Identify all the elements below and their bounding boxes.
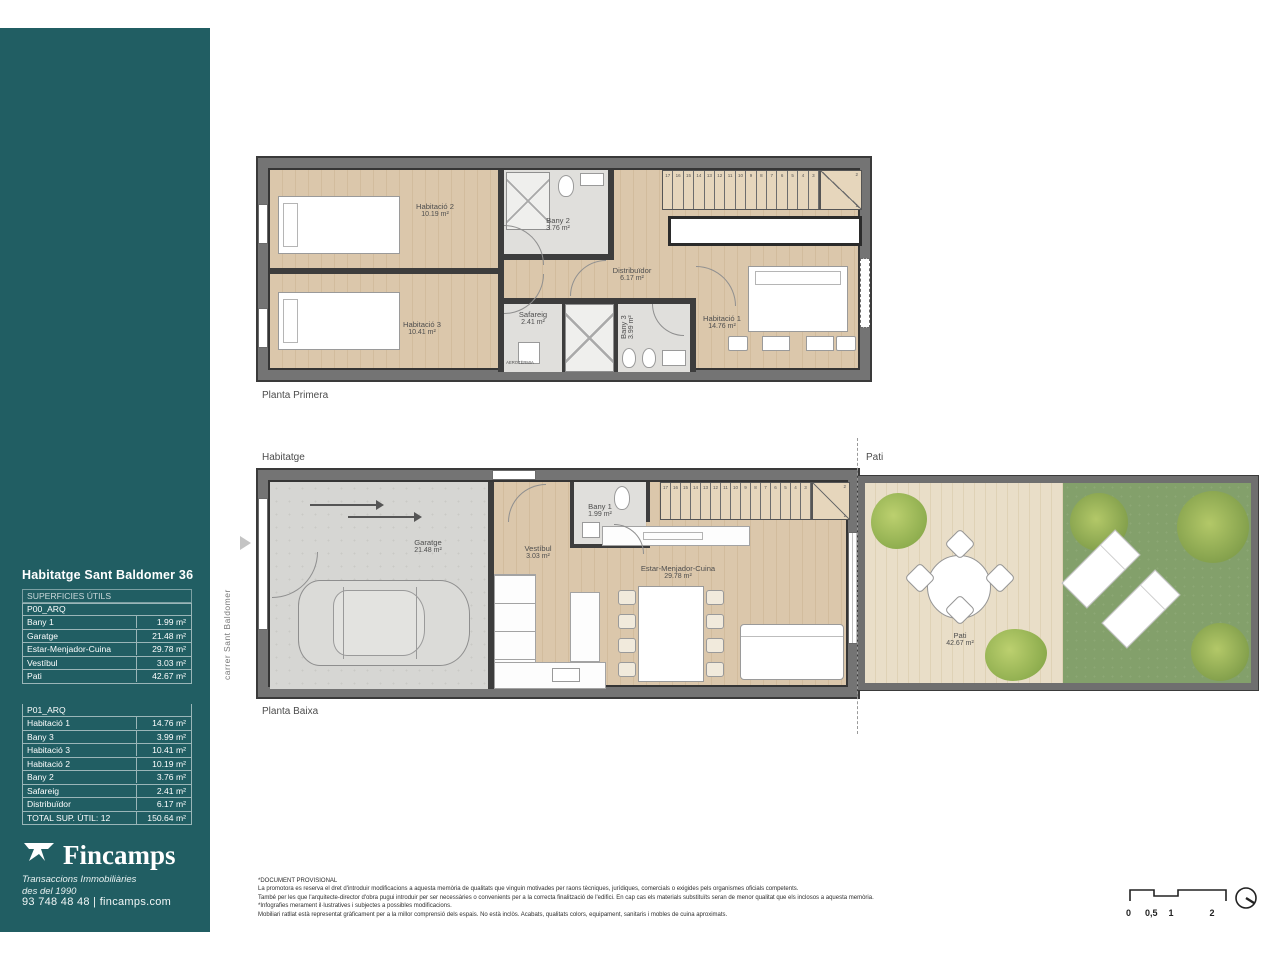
stair-tread: 11: [725, 171, 735, 209]
stair-tread: 5: [781, 483, 791, 519]
window: [258, 204, 268, 244]
stairs-first-floor: 17161514131211109876543: [662, 170, 820, 210]
kitchen-sink-icon: [552, 668, 580, 682]
chair: [706, 590, 724, 605]
table-total-row: TOTAL SUP. ÚTIL: 12150.64 m²: [22, 812, 192, 826]
room-label-bany1: Bany 11.99 m²: [588, 502, 612, 520]
chair: [706, 638, 724, 653]
brand-contact: 93 748 48 48 | fincamps.com: [22, 896, 171, 908]
sink-icon: [580, 173, 604, 186]
stair-tread: 7: [767, 171, 777, 209]
stair-tread: 17: [663, 171, 673, 209]
chair: [618, 614, 636, 629]
table-row: Pati42.67 m²: [22, 670, 192, 684]
ground-floor-plan: 17161514131211109876543 2 1: [258, 470, 1258, 697]
tree: [1177, 491, 1249, 563]
room-label-distribuidor: Distribuïdor6.17 m²: [613, 266, 652, 284]
room-label-vestibul: Vestíbul3.03 m²: [524, 544, 551, 562]
habitatge-building: 17161514131211109876543 2 1: [258, 470, 858, 697]
bidet-icon: [642, 348, 656, 368]
chair: [706, 662, 724, 677]
fincamps-logo-icon: [22, 840, 56, 869]
table-row: Bany 33.99 m²: [22, 731, 192, 745]
disclaimer: *DOCUMENT PROVISIONALLa promotora es res…: [258, 877, 958, 919]
stair-tread: 4: [791, 483, 801, 519]
stair-tread: 5: [788, 171, 798, 209]
stair-tread: 13: [701, 483, 711, 519]
scale-tick: 1: [1169, 908, 1174, 918]
side-table: [728, 336, 748, 351]
scale-tick: 0,5: [1145, 908, 1158, 918]
stair-tread: 10: [731, 483, 741, 519]
scale-tick: 0: [1126, 908, 1131, 918]
stair-tread: 16: [671, 483, 681, 519]
surfaces-table: SUPERFICIES ÚTILS P00_ARQBany 11.99 m²Ga…: [22, 589, 192, 825]
car: [298, 580, 470, 666]
surfaces-table-body: P00_ARQBany 11.99 m²Garatge21.48 m²Estar…: [22, 603, 192, 826]
stair-tread: 16: [673, 171, 683, 209]
stair-tread: 12: [711, 483, 721, 519]
stair-tread: 10: [736, 171, 746, 209]
disclaimer-line: La promotora es reserva el dret d'introd…: [258, 885, 958, 893]
sink-icon: [662, 350, 686, 366]
disclaimer-line: Mobiliari ratllat està representat gràfi…: [258, 911, 958, 919]
table-row: Habitació 114.76 m²: [22, 717, 192, 731]
dining-table: [638, 586, 704, 682]
pati-zone-label: Pati: [866, 452, 883, 463]
chair: [618, 662, 636, 677]
stair-tread: 8: [751, 483, 761, 519]
chair: [618, 590, 636, 605]
tree: [1191, 623, 1249, 681]
first-floor-interior: 17161514131211109876543 2 1: [268, 168, 860, 370]
compass-icon: [1234, 886, 1260, 917]
table-row: Bany 11.99 m²: [22, 616, 192, 630]
pati-area: Pati42.67 m²: [858, 476, 1258, 690]
stairs-winder: 2 1: [820, 170, 862, 210]
garage-door-opening: [258, 498, 268, 630]
scale-tick: 2: [1210, 908, 1215, 918]
door-arc: [696, 266, 736, 306]
nightstand: [806, 336, 834, 351]
surfaces-table-header: SUPERFICIES ÚTILS: [22, 589, 192, 603]
toilet-icon: [558, 175, 574, 197]
brochure-page: Habitatge Sant Baldomer 36 SUPERFICIES Ú…: [0, 0, 1280, 960]
first-floor-label: Planta Primera: [262, 390, 328, 401]
scale-bar-icon: [1128, 886, 1228, 902]
nightstand: [762, 336, 790, 351]
first-floor-plan: 17161514131211109876543 2 1: [258, 158, 870, 380]
kitchen-island: [570, 592, 600, 662]
street-label: carrer Sant Baldomer: [222, 540, 232, 680]
toilet-icon: [614, 486, 630, 510]
stairs-ground-floor: 17161514131211109876543: [660, 482, 812, 520]
door-arc: [570, 260, 606, 296]
wall: [690, 298, 696, 372]
habitatge-label: Habitatge: [262, 452, 305, 463]
room-label-bany2: Bany 23.76 m²: [546, 216, 570, 234]
table-section-header: P00_ARQ: [22, 603, 192, 617]
brand-tagline-line1: Transaccions Immobiliàries: [22, 874, 198, 886]
wall: [270, 268, 504, 274]
stair-tread: 6: [777, 171, 787, 209]
sink-icon: [582, 522, 600, 538]
table-row: Estar-Menjador-Cuina29.78 m²: [22, 643, 192, 657]
wall: [614, 304, 618, 372]
wall: [608, 170, 614, 260]
room-label-estar: Estar-Menjador-Cuina29.78 m²: [641, 564, 715, 582]
table-row: Vestíbul3.03 m²: [22, 657, 192, 671]
chair: [706, 614, 724, 629]
entry-arrow-icon: [240, 536, 251, 550]
door-arc: [508, 484, 546, 522]
wall: [562, 304, 565, 372]
ground-floor-interior: 17161514131211109876543 2 1: [268, 480, 848, 687]
room-label-garatge: Garatge21.48 m²: [414, 538, 442, 556]
double-bed: [278, 292, 400, 350]
stair-tread: 12: [715, 171, 725, 209]
stair-tread: 11: [721, 483, 731, 519]
stair-number: 1: [855, 203, 858, 208]
stair-tread: 14: [691, 483, 701, 519]
aerotermia-label: AEROTÈRMIA: [506, 360, 534, 365]
toilet-icon: [622, 348, 636, 368]
table-row: Bany 23.76 m²: [22, 771, 192, 785]
chair: [618, 638, 636, 653]
room-label-bany3: Bany 33.99 m²: [619, 315, 637, 339]
table-row: Garatge21.48 m²: [22, 630, 192, 644]
room-label-pati: Pati42.67 m²: [946, 631, 974, 649]
shower-icon: [506, 172, 550, 230]
brand-name: Fincamps: [63, 842, 176, 869]
disclaimer-line: *DOCUMENT PROVISIONAL: [258, 877, 958, 885]
fincamps-logo: Fincamps Transaccions Immobiliàries des …: [22, 840, 198, 899]
stair-tread: 3: [809, 171, 819, 209]
stair-number: 2: [843, 484, 846, 489]
stair-void: [668, 216, 862, 246]
shower-icon: [565, 304, 614, 372]
stair-tread: 15: [681, 483, 691, 519]
stair-tread: 4: [798, 171, 808, 209]
stair-tread: 6: [771, 483, 781, 519]
stair-tread: 8: [757, 171, 767, 209]
balcony-door: [860, 258, 870, 328]
room-label-safareig: Safareig2.41 m²: [519, 310, 547, 328]
stair-tread: 13: [705, 171, 715, 209]
double-bed: [278, 196, 400, 254]
table-row: Safareig2.41 m²: [22, 785, 192, 799]
table-row: Distribuïdor6.17 m²: [22, 798, 192, 812]
stair-tread: 9: [741, 483, 751, 519]
side-table: [836, 336, 856, 351]
stair-tread: 9: [746, 171, 756, 209]
window: [258, 308, 268, 348]
stair-tread: 17: [661, 483, 671, 519]
stairs-winder: 2 1: [812, 482, 850, 520]
garage-door-symbol: [348, 516, 414, 518]
sofa: [740, 624, 844, 680]
disclaimer-line: *Infografies merament il·lustratives i s…: [258, 902, 958, 910]
habitatge-pati-divider: [857, 438, 858, 734]
ground-floor-label: Planta Baixa: [262, 706, 318, 717]
double-bed: [748, 266, 848, 332]
room-label-habitacio3: Habitació 310.41 m²: [403, 320, 441, 338]
table-row: Habitació 310.41 m²: [22, 744, 192, 758]
stair-tread: 7: [761, 483, 771, 519]
table-section-header: P01_ARQ: [22, 704, 192, 718]
stair-tread: 14: [694, 171, 704, 209]
scale-bar: 0 0,5 1 2: [1128, 886, 1228, 918]
room-label-habitacio1: Habitació 114.76 m²: [703, 314, 741, 332]
stair-tread: 15: [684, 171, 694, 209]
table-row: Habitació 210.19 m²: [22, 758, 192, 772]
room-label-habitacio2: Habitació 210.19 m²: [416, 202, 454, 220]
property-title: Habitatge Sant Baldomer 36: [22, 568, 194, 582]
kitchen-counter: [494, 662, 606, 689]
stair-number: 2: [855, 172, 858, 177]
front-door-opening: [492, 470, 536, 480]
wall: [646, 482, 650, 522]
stair-tread: 3: [801, 483, 811, 519]
sidebar: Habitatge Sant Baldomer 36 SUPERFICIES Ú…: [0, 28, 210, 932]
garage-door-symbol: [310, 504, 376, 506]
stair-number: 1: [843, 513, 846, 518]
disclaimer-line: També per les que l'arquitecte-director …: [258, 894, 958, 902]
